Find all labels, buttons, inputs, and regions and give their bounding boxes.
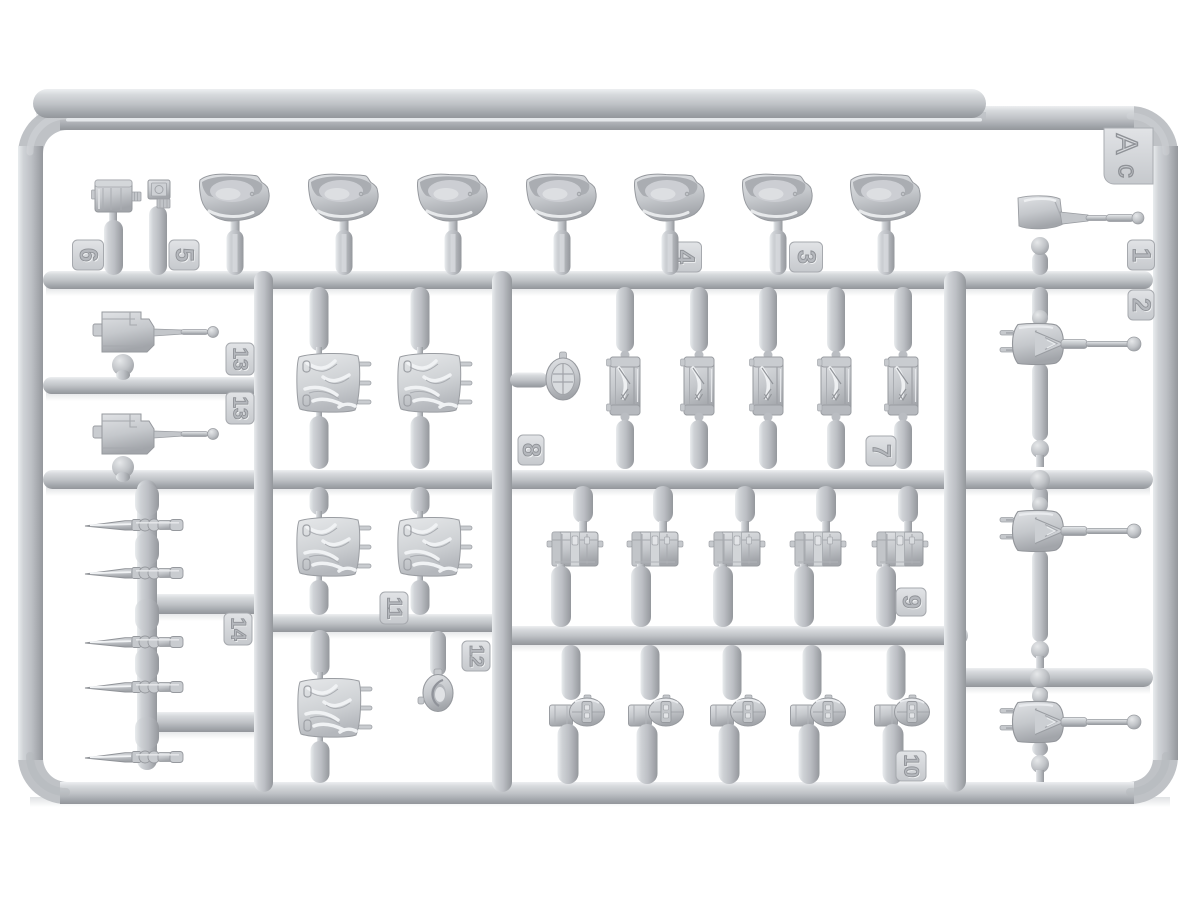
svg-text:12: 12 <box>465 645 487 667</box>
svg-text:2: 2 <box>1127 298 1155 312</box>
svg-text:13: 13 <box>229 347 252 370</box>
svg-text:c: c <box>1113 164 1143 178</box>
svg-text:A: A <box>1110 134 1145 155</box>
svg-text:11: 11 <box>383 597 406 620</box>
svg-text:14: 14 <box>227 617 250 641</box>
svg-text:5: 5 <box>170 248 198 262</box>
svg-text:13: 13 <box>229 396 252 419</box>
svg-text:6: 6 <box>74 248 102 262</box>
svg-text:9: 9 <box>897 595 925 609</box>
svg-text:3: 3 <box>792 250 820 264</box>
svg-text:8: 8 <box>517 443 545 457</box>
svg-text:1: 1 <box>1127 248 1155 262</box>
svg-text:7: 7 <box>867 444 895 458</box>
svg-text:10: 10 <box>900 754 923 777</box>
